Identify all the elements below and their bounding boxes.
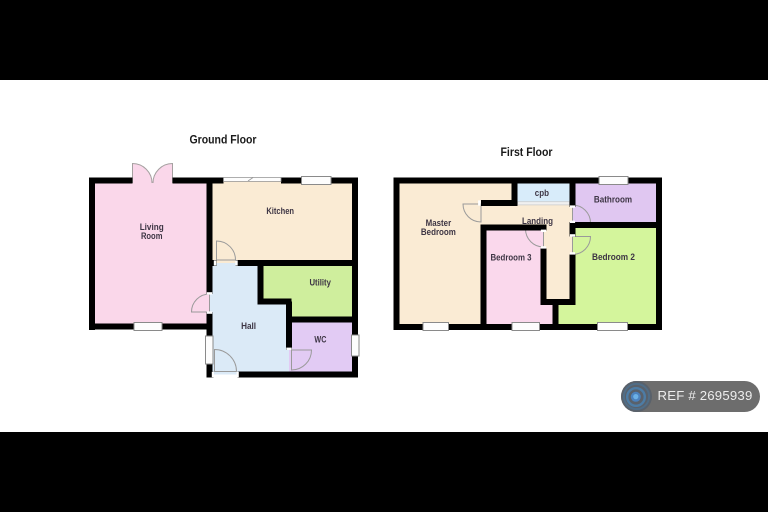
- svg-text:Landing: Landing: [522, 216, 553, 227]
- svg-text:Room: Room: [141, 231, 163, 242]
- svg-text:Kitchen: Kitchen: [266, 206, 294, 217]
- svg-text:Utility: Utility: [309, 278, 331, 289]
- svg-text:cpb: cpb: [535, 188, 549, 199]
- svg-text:Bedroom: Bedroom: [421, 227, 456, 238]
- svg-text:Bathroom: Bathroom: [594, 195, 632, 206]
- svg-text:Ground Floor: Ground Floor: [190, 133, 257, 147]
- svg-text:WC: WC: [314, 335, 326, 346]
- svg-text:First Floor: First Floor: [501, 145, 553, 159]
- svg-text:Hall: Hall: [241, 321, 256, 332]
- svg-text:Bedroom 3: Bedroom 3: [491, 253, 532, 264]
- svg-text:Bedroom 2: Bedroom 2: [592, 252, 635, 263]
